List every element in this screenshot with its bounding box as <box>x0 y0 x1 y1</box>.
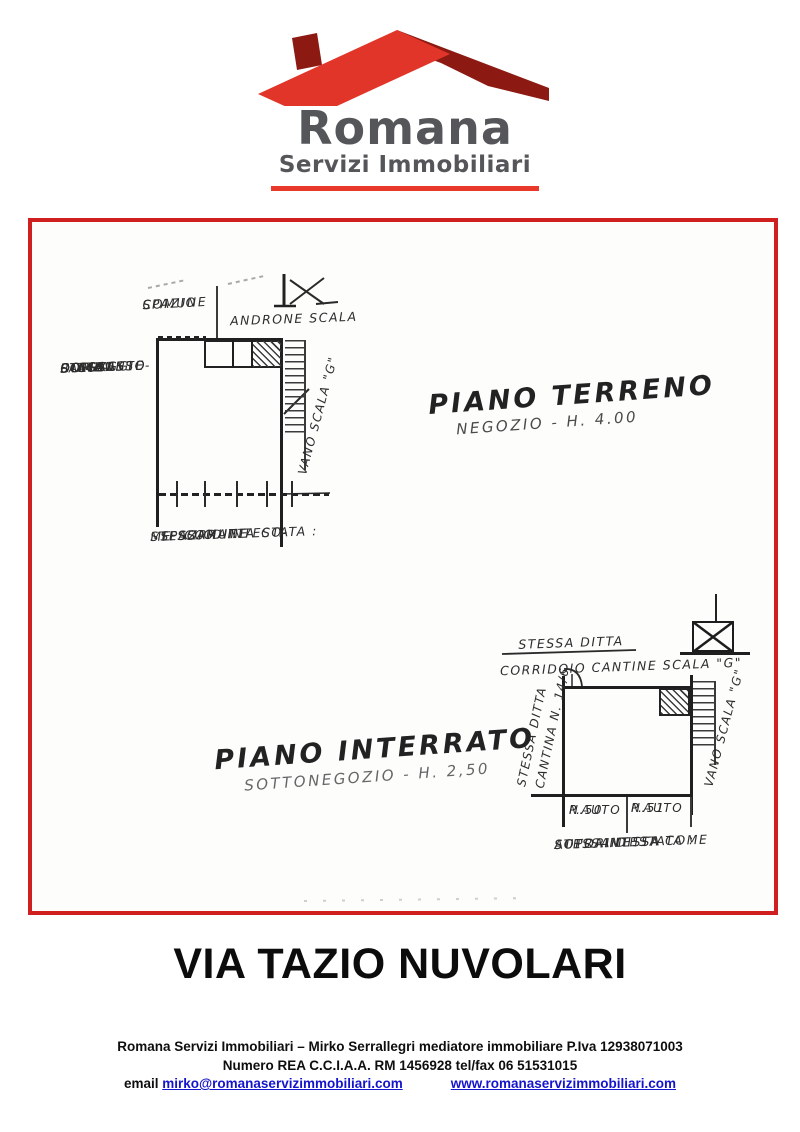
gf-front-tick <box>291 481 293 507</box>
bf-right-wall-stub <box>690 797 692 827</box>
roof-logo-icon <box>254 24 556 106</box>
brand-name: Romana <box>250 106 560 150</box>
floor-plan-frame: SPAZIO COMUNE ANDRONE SCALA STESSA DITTA… <box>28 218 778 915</box>
bf-stair-hatch <box>659 688 690 716</box>
gf-wall-stub-up <box>216 286 218 338</box>
gf-stairwell-treads <box>285 340 304 434</box>
gf-right-wall <box>280 338 283 547</box>
agency-logo: Romana Servizi Immobiliari <box>250 24 560 191</box>
gf-front-tick <box>236 481 238 507</box>
gf-front-tick <box>266 481 268 507</box>
gf-front-dashed-line <box>159 493 329 496</box>
bf-parking-divider <box>626 797 628 833</box>
brand-underline <box>271 186 539 191</box>
email-label: email <box>124 1076 159 1091</box>
website-link[interactable]: www.romanaservizimmobiliari.com <box>451 1076 676 1091</box>
footer-line-contacts: email mirko@romanaservizimmobiliari.comw… <box>0 1075 800 1094</box>
gf-top-wall-opening <box>158 336 206 341</box>
gf-front-tick <box>204 481 206 507</box>
footer-line-company: Romana Servizi Immobiliari – Mirko Serra… <box>0 1038 800 1057</box>
brand-subtitle: Servizi Immobiliari <box>250 150 560 180</box>
street-title: VIA TAZIO NUVOLARI <box>0 940 800 989</box>
email-link[interactable]: mirko@romanaservizimmobiliari.com <box>162 1076 403 1091</box>
gf-stair-hatch <box>253 341 281 367</box>
gf-room-divider-1 <box>232 340 234 368</box>
footer: Romana Servizi Immobiliari – Mirko Serra… <box>0 1038 800 1094</box>
footer-line-rea: Numero REA C.C.I.A.A. RM 1456928 tel/fax… <box>0 1057 800 1076</box>
bf-bottom-wall <box>531 794 693 797</box>
gf-left-wall <box>156 338 159 527</box>
listing-page: Romana Servizi Immobiliari <box>0 0 800 1132</box>
gf-front-tick <box>176 481 178 507</box>
bf-stairwell-treads <box>693 681 714 747</box>
bf-window-x-box <box>692 621 734 652</box>
